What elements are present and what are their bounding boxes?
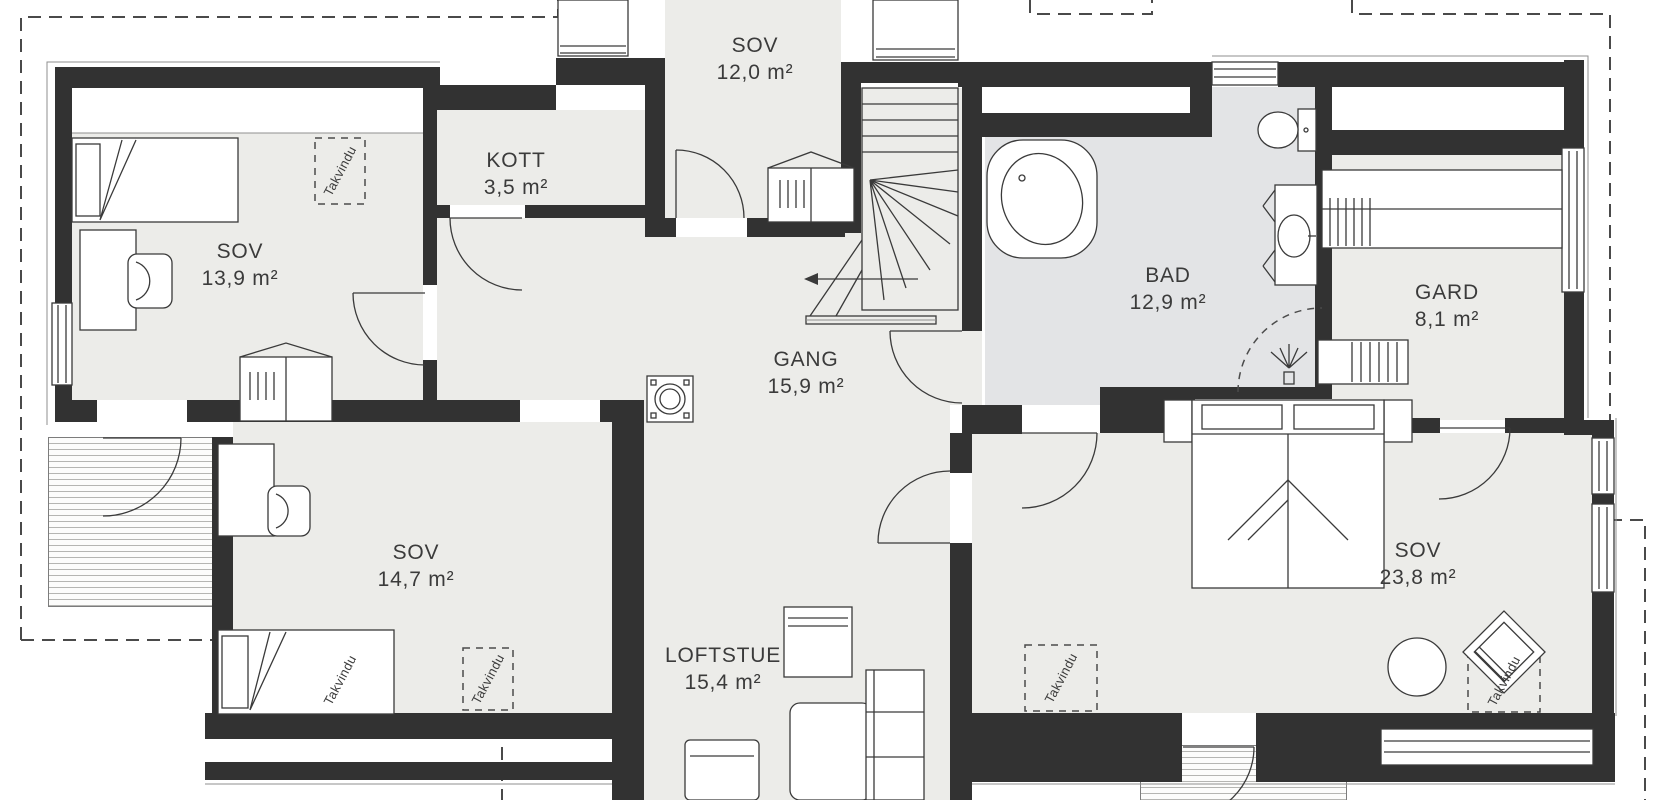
room-name: BAD [1130,263,1207,290]
window-sov238-bottom [1381,729,1593,765]
tv-bench-loftstue [784,607,852,677]
room-area: 3,5 m² [484,175,548,202]
floor-plan: SOV 13,9 m² KOTT 3,5 m² SOV 12,0 m² GANG… [0,0,1670,800]
room-name: SOV [1380,538,1457,565]
room-name: GANG [768,347,845,374]
room-label-sov139: SOV 13,9 m² [202,239,279,293]
room-name: SOV [202,239,279,266]
closet-gard-left [1318,340,1408,384]
door-terrace [103,438,181,516]
bed-double-sov238 [1164,400,1412,588]
bookshelf-loftstue [866,670,924,800]
round-table-sov238 [1388,638,1446,696]
room-area: 15,4 m² [665,670,781,697]
room-label-sov147: SOV 14,7 m² [378,540,455,594]
armchair-loftstue [685,740,759,800]
door-balcony [1183,747,1254,800]
room-area: 13,9 m² [202,266,279,293]
window-gard-right [1562,148,1584,292]
room-area: 23,8 m² [1380,565,1457,592]
window-bad-top [1212,62,1278,85]
room-name: KOTT [484,148,548,175]
room-area: 12,0 m² [717,60,794,87]
room-area: 15,9 m² [768,374,845,401]
room-name: SOV [717,33,794,60]
room-area: 8,1 m² [1415,307,1479,334]
dormer-window-top-center [873,0,958,60]
room-label-sov120: SOV 12,0 m² [717,33,794,87]
room-label-loftstue: LOFTSTUE 15,4 m² [665,643,781,697]
window-left-wall [52,303,72,385]
room-label-gang: GANG 15,9 m² [768,347,845,401]
room-name: GARD [1415,280,1479,307]
bathtub [987,140,1097,258]
toilet [1258,109,1316,151]
room-area: 12,9 m² [1130,290,1207,317]
room-name: SOV [378,540,455,567]
chimney [647,376,693,422]
room-label-sov238: SOV 23,8 m² [1380,538,1457,592]
dormer-window-top-left [558,0,628,56]
room-label-gard: GARD 8,1 m² [1415,280,1479,334]
room-label-bad: BAD 12,9 m² [1130,263,1207,317]
window-sov238-right-2 [1592,504,1614,592]
bed-single-sov147 [218,630,394,714]
knee-strip-sov139 [72,88,423,133]
room-area: 14,7 m² [378,567,455,594]
bed-single-sov139 [72,138,238,222]
room-name: LOFTSTUE [665,643,781,670]
chaise-loftstue [790,703,872,800]
closet-gard-top [1322,170,1562,248]
window-sov238-right-1 [1592,438,1614,494]
knee-strip-bad [978,87,1190,113]
room-label-kott: KOTT 3,5 m² [484,148,548,202]
